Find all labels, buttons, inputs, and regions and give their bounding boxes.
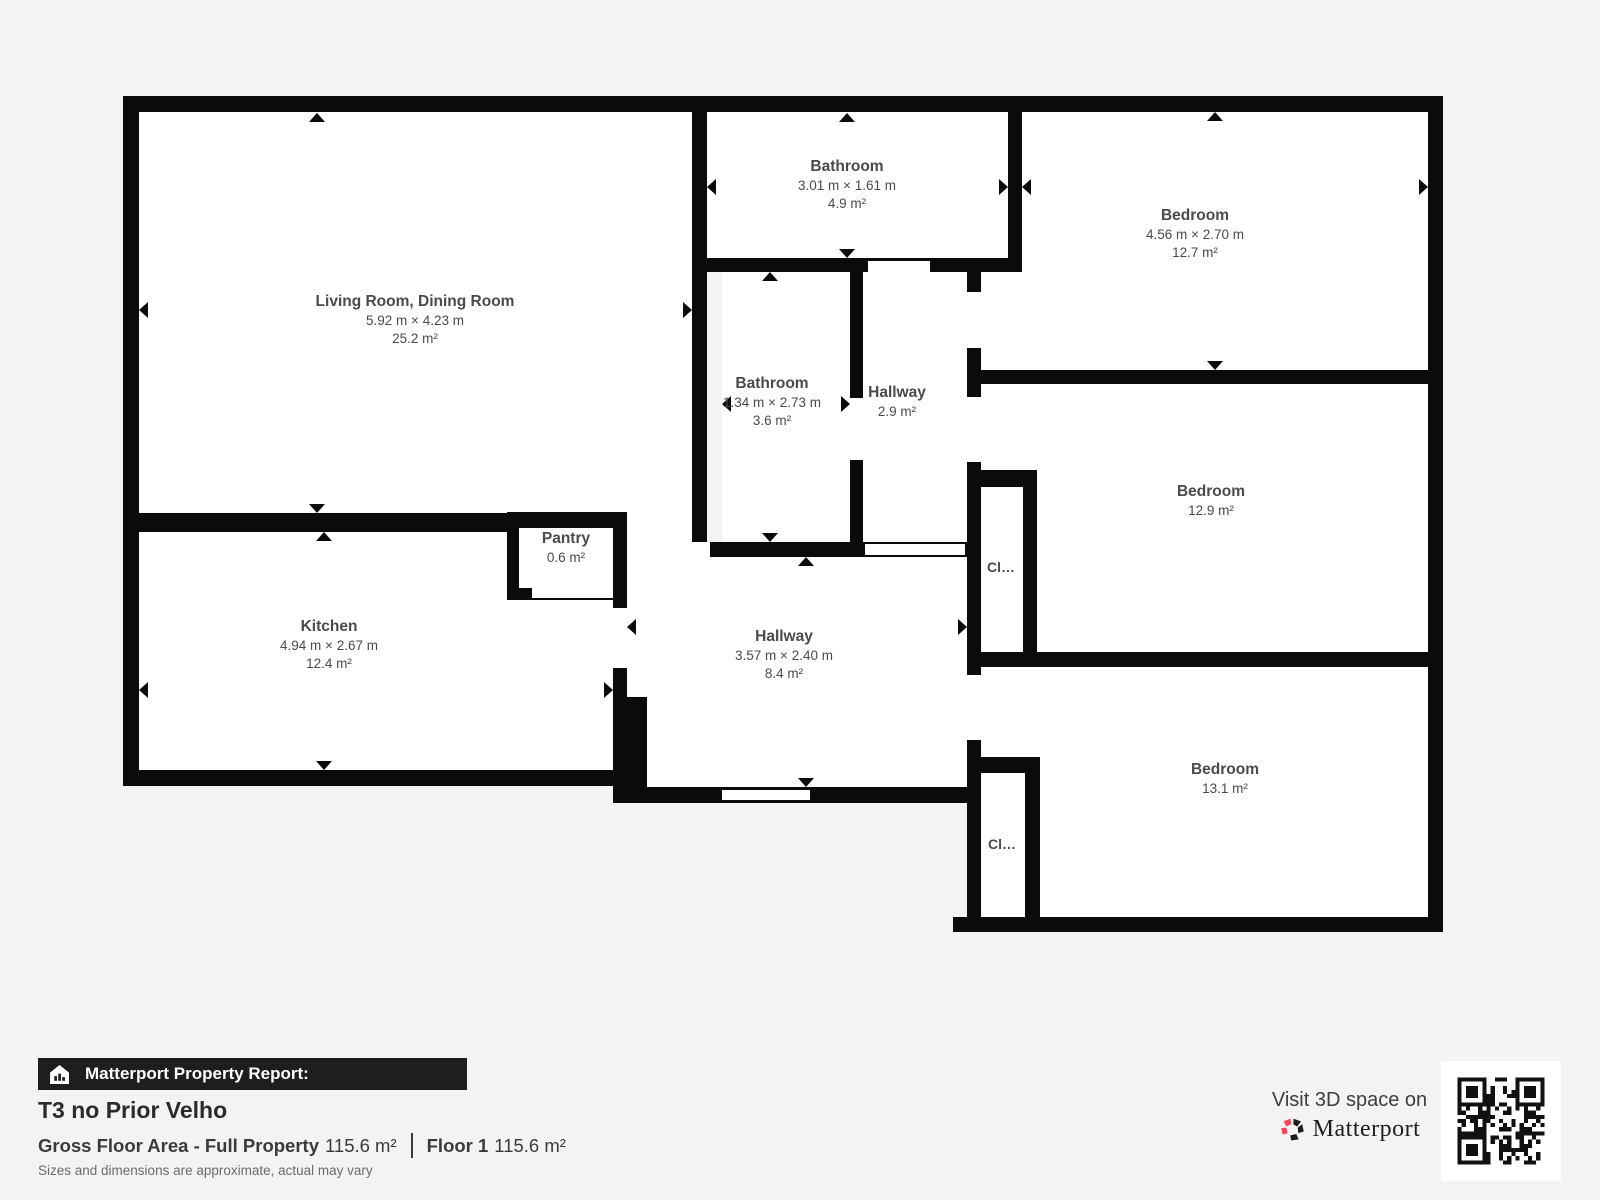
visit-3d-cta: Visit 3D space on Matterport: [1262, 1088, 1437, 1143]
measure-arrow-left-icon: [139, 682, 148, 698]
room-label-hallway-small: Hallway 2.9 m²: [868, 383, 926, 421]
matterport-wordmark: Matterport: [1313, 1116, 1421, 1143]
wall-closet-bottom-top: [967, 757, 1040, 773]
property-title: T3 no Prior Velho: [38, 1097, 227, 1124]
door-opening-entrance: [722, 790, 810, 800]
room-label-living: Living Room, Dining Room 5.92 m × 4.23 m…: [316, 292, 515, 349]
area-summary: Gross Floor Area - Full Property 115.6 m…: [38, 1133, 566, 1158]
wall-bedroommid-bottom: [967, 652, 1443, 667]
wall-exterior-left: [123, 96, 139, 786]
wall-bathtop-bottom: [692, 258, 1022, 272]
measure-arrow-down-icon: [309, 504, 325, 513]
measure-arrow-up-icon: [1207, 112, 1223, 121]
wall-closet-mid-top: [967, 470, 1037, 487]
divider: [411, 1133, 413, 1158]
room-floor-bedroom-top-notch: [981, 272, 1022, 370]
wall-exterior-bottom-right: [953, 917, 1443, 932]
measure-arrow-down-icon: [839, 249, 855, 258]
measure-arrow-right-icon: [958, 619, 967, 635]
matterport-logo-icon: [1279, 1116, 1306, 1143]
door-opening-pantry: [532, 588, 613, 598]
matterport-floorplan-report: Living Room, Dining Room 5.92 m × 4.23 m…: [0, 0, 1600, 1200]
door-opening-kitchen: [613, 608, 627, 668]
house-chart-icon: [49, 1064, 70, 1085]
measure-arrow-left-icon: [1022, 179, 1031, 195]
qr-code: [1441, 1061, 1561, 1181]
room-label-closet-mid: Cl…: [987, 558, 1015, 578]
measure-arrow-right-icon: [604, 682, 613, 698]
room-label-pantry: Pantry 0.6 m²: [542, 529, 590, 567]
room-label-bedroom-top: Bedroom 4.56 m × 2.70 m 12.7 m²: [1146, 206, 1244, 263]
wall-corridor-vertical: [967, 272, 981, 932]
door-opening-hallway-small: [865, 544, 965, 555]
report-header-bar: Matterport Property Report:: [38, 1058, 467, 1090]
measure-arrow-right-icon: [683, 302, 692, 318]
wall-closet-bottom-right: [1025, 773, 1040, 917]
door-opening-bedroom-top: [967, 292, 981, 348]
measure-arrow-right-icon: [1419, 179, 1428, 195]
measure-arrow-up-icon: [798, 557, 814, 566]
opening-living-hallway: [627, 542, 710, 557]
wall-exterior-top: [123, 96, 1443, 112]
measure-arrow-down-icon: [1207, 361, 1223, 370]
room-label-bathroom-top: Bathroom 3.01 m × 1.61 m 4.9 m²: [798, 157, 896, 214]
door-opening-bedroom-bottom: [967, 675, 981, 740]
measure-arrow-up-icon: [309, 113, 325, 122]
floor-value: 115.6 m²: [494, 1135, 566, 1157]
room-floor-living-passage: [627, 513, 692, 542]
gross-area-value: 115.6 m²: [325, 1135, 397, 1157]
matterport-brand: Matterport: [1262, 1116, 1437, 1143]
measure-arrow-down-icon: [316, 761, 332, 770]
room-label-bedroom-mid: Bedroom 12.9 m²: [1177, 482, 1245, 520]
report-bar-label: Matterport Property Report:: [85, 1064, 309, 1084]
measure-arrow-right-icon: [999, 179, 1008, 195]
door-opening-bedroom-mid: [967, 397, 981, 462]
gross-area-label: Gross Floor Area - Full Property: [38, 1135, 319, 1157]
wall-living-kitchen: [123, 513, 507, 532]
wall-living-bath-column: [692, 112, 707, 542]
room-label-bedroom-bottom: Bedroom 13.1 m²: [1191, 760, 1259, 798]
measure-arrow-up-icon: [316, 532, 332, 541]
door-opening-bathroom-mid: [850, 398, 863, 460]
measure-arrow-up-icon: [839, 113, 855, 122]
wall-exterior-right: [1428, 96, 1443, 932]
visit-text: Visit 3D space on: [1262, 1088, 1437, 1112]
wall-hallway-step: [627, 697, 647, 787]
room-label-closet-bottom: Cl…: [988, 835, 1016, 855]
wall-kitchen-bottom: [123, 770, 629, 786]
measure-arrow-down-icon: [798, 778, 814, 787]
wall-bathtop-bedroom: [1008, 112, 1022, 258]
door-opening-bathroom-top: [868, 261, 930, 272]
wall-bedroomtop-bottom: [967, 370, 1428, 384]
measure-arrow-right-icon: [841, 396, 850, 412]
measure-arrow-left-icon: [139, 302, 148, 318]
room-label-hallway-main: Hallway 3.57 m × 2.40 m 8.4 m²: [735, 627, 833, 684]
measure-arrow-down-icon: [762, 533, 778, 542]
disclaimer-text: Sizes and dimensions are approximate, ac…: [38, 1163, 373, 1178]
measure-arrow-left-icon: [627, 619, 636, 635]
measure-arrow-left-icon: [707, 179, 716, 195]
room-label-bathroom-mid: Bathroom 1.34 m × 2.73 m 3.6 m²: [723, 374, 821, 431]
wall-closet-mid-right: [1023, 487, 1037, 652]
measure-arrow-up-icon: [762, 272, 778, 281]
room-label-kitchen: Kitchen 4.94 m × 2.67 m 12.4 m²: [280, 617, 378, 674]
floor-label: Floor 1: [427, 1135, 489, 1157]
